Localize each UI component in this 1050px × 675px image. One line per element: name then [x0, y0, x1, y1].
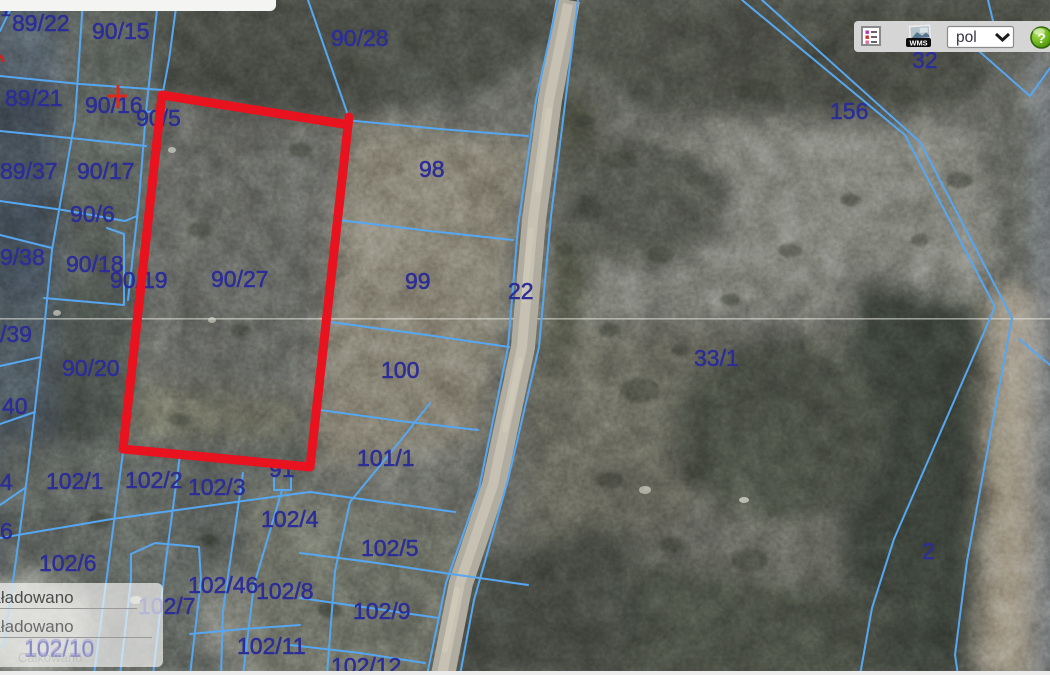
svg-text:?: ? [1037, 30, 1046, 46]
svg-text:WMS: WMS [909, 38, 927, 47]
svg-text:pol: pol [956, 29, 977, 46]
